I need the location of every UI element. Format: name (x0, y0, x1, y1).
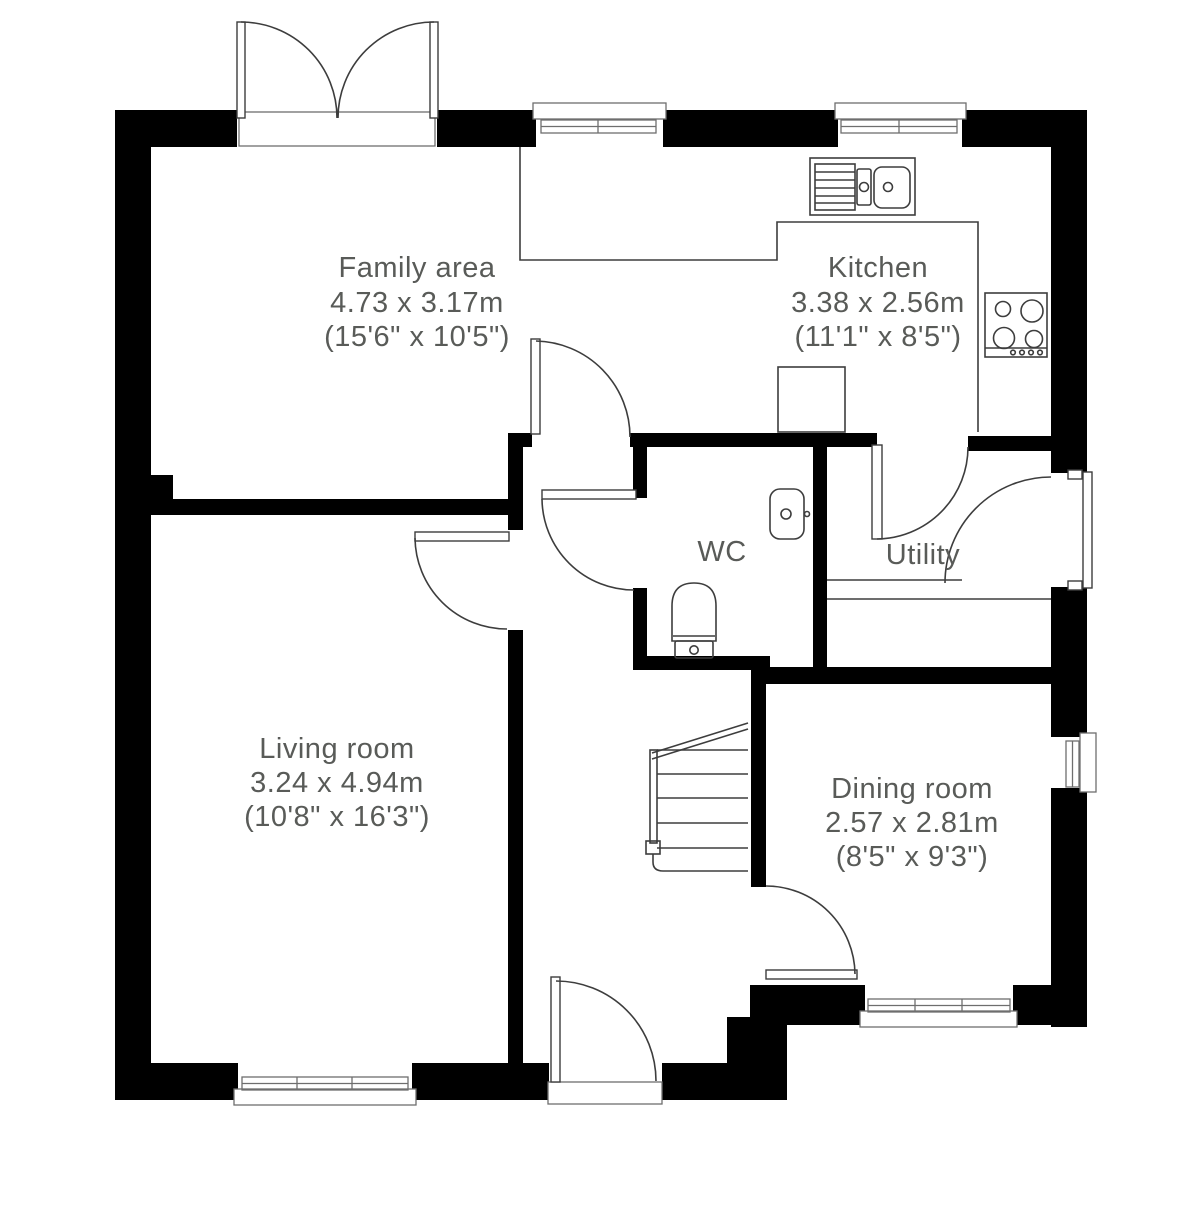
floor-plan: Family area 4.73 x 3.17m (15'6" x 10'5")… (0, 0, 1200, 1212)
window-dining-room (860, 999, 1017, 1027)
utility-ext-door-jamb-top (1068, 470, 1082, 479)
window-sill (1080, 733, 1096, 792)
window-living-room (234, 1077, 416, 1105)
room-label-family-area: Family area 4.73 x 3.17m (15'6" x 10'5") (324, 252, 510, 353)
room-name: Family area (339, 252, 496, 284)
wall-dining-bottom-1 (750, 985, 865, 1025)
wc-door-arc (542, 499, 634, 590)
hand-basin-icon (770, 489, 810, 539)
sink-tap-dot (860, 183, 869, 192)
hob-knob-3 (1029, 350, 1034, 355)
toilet-flush-dot (690, 646, 698, 654)
hob-knob-1 (1011, 350, 1016, 355)
window-sill (835, 103, 966, 119)
front-door-leaf (551, 977, 560, 1082)
room-dim-imperial: (11'1" x 8'5") (794, 321, 961, 353)
living-door-leaf (415, 532, 509, 541)
french-door-arc-right (338, 22, 434, 118)
wall-dining-bottom-2 (1013, 985, 1087, 1025)
living-door-arc (415, 538, 507, 629)
stair-handrail (650, 750, 657, 843)
wall-wc-north (630, 433, 877, 447)
wall-bottom-3 (662, 1063, 787, 1100)
wall-hall-west-upper (508, 433, 523, 530)
walls (115, 110, 1087, 1100)
staircase (646, 723, 748, 871)
room-dim-metric: 2.57 x 2.81m (825, 807, 999, 839)
room-dim-metric: 3.38 x 2.56m (791, 287, 965, 319)
window-right-wall (1066, 733, 1096, 792)
basin-bowl (770, 489, 804, 539)
hob-burner-1 (996, 302, 1011, 317)
room-label-dining-room: Dining room 2.57 x 2.81m (8'5" x 9'3") (825, 773, 999, 873)
wall-top-2 (437, 110, 536, 147)
window-sill (234, 1089, 416, 1105)
wall-dining-west (751, 668, 766, 887)
front-door-arc (556, 981, 656, 1081)
wall-utility-south (763, 667, 1051, 684)
wall-right-1 (1051, 110, 1087, 473)
wall-family-living-divider (151, 499, 511, 515)
front-door-threshold (548, 1082, 662, 1104)
room-name: WC (697, 536, 746, 568)
wall-left (115, 110, 151, 1100)
hob-burner-3 (994, 328, 1015, 349)
wall-top-3 (663, 110, 838, 147)
room-label-utility: Utility (886, 539, 960, 571)
door-utility-from-kitchen (872, 445, 968, 539)
room-labels: Family area 4.73 x 3.17m (15'6" x 10'5")… (244, 252, 999, 873)
hob-burner-4 (1026, 331, 1043, 348)
basin-drain-dot (781, 509, 791, 519)
hob-knob-2 (1020, 350, 1025, 355)
room-label-wc: WC (697, 536, 746, 568)
room-label-kitchen: Kitchen 3.38 x 2.56m (11'1" x 8'5") (791, 252, 965, 353)
kitchen-fixtures (520, 147, 1047, 432)
window-sill (533, 103, 666, 119)
room-name: Utility (886, 539, 960, 571)
doors (237, 22, 1092, 1104)
stair-curtail-edge (653, 854, 748, 871)
kitchen-appliance-unit (778, 367, 845, 432)
external-door-utility (945, 470, 1092, 590)
room-name: Living room (259, 733, 414, 765)
hob-icon (985, 293, 1047, 357)
dining-door-leaf (766, 970, 857, 979)
wall-divider-stub (151, 475, 173, 501)
room-dim-metric: 4.73 x 3.17m (330, 287, 504, 319)
floor-plan-drawing: Family area 4.73 x 3.17m (15'6" x 10'5")… (0, 0, 1200, 1212)
sink-drainer-lines (815, 172, 855, 203)
stair-break-line-2 (652, 729, 748, 759)
wall-hall-west-lower (508, 630, 523, 1063)
utility-ext-door-arc (945, 477, 1051, 583)
french-doors-family-area (237, 22, 438, 146)
room-name: Dining room (831, 773, 993, 805)
door-family-to-hall (531, 339, 630, 437)
utility-kitchen-door-arc (877, 447, 968, 539)
wc-door-leaf (542, 490, 636, 499)
french-door-leaf-right (430, 22, 438, 118)
stair-treads (657, 750, 748, 848)
wall-kitchen-south-east (968, 436, 1051, 451)
wall-wc-east (813, 447, 827, 670)
dining-door-arc (766, 886, 855, 974)
room-dim-metric: 3.24 x 4.94m (250, 767, 424, 799)
room-label-living-room: Living room 3.24 x 4.94m (10'8" x 16'3") (244, 733, 430, 833)
wc-fixtures (672, 489, 810, 658)
hob-knob-4 (1038, 350, 1043, 355)
front-door (548, 977, 662, 1104)
door-dining-room (766, 886, 857, 979)
wall-hall-north-stub (508, 433, 532, 447)
utility-ext-door-leaf (1083, 472, 1092, 588)
wall-right-2 (1051, 587, 1087, 737)
family-door-leaf (531, 339, 540, 434)
window-sill (860, 1011, 1017, 1027)
window-kitchen-left (533, 103, 666, 133)
room-dim-imperial: (15'6" x 10'5") (324, 321, 510, 353)
hob-burner-2 (1021, 300, 1043, 322)
french-door-arc-left (241, 22, 337, 118)
window-kitchen-right (835, 103, 966, 133)
wall-bottom-2 (412, 1063, 549, 1100)
room-dim-imperial: (10'8" x 16'3") (244, 801, 430, 833)
door-wc (542, 490, 636, 590)
toilet-icon (672, 583, 716, 658)
toilet-bowl (672, 583, 716, 641)
utility-fixtures (827, 580, 1051, 599)
wall-bottom-1 (115, 1063, 238, 1100)
basin-tap-dot (805, 512, 810, 517)
french-door-leaf-left (237, 22, 245, 118)
door-living-room (415, 532, 509, 629)
family-door-arc (536, 341, 630, 437)
room-name: Kitchen (828, 252, 928, 284)
toilet-cistern (675, 641, 713, 658)
kitchen-sink-with-drainer-icon (810, 158, 915, 215)
sink-drain-dot (884, 183, 893, 192)
room-dim-imperial: (8'5" x 9'3") (836, 841, 989, 873)
utility-kitchen-door-leaf (872, 445, 882, 539)
stair-break-line-1 (652, 723, 748, 753)
utility-ext-door-jamb-bottom (1068, 581, 1082, 590)
